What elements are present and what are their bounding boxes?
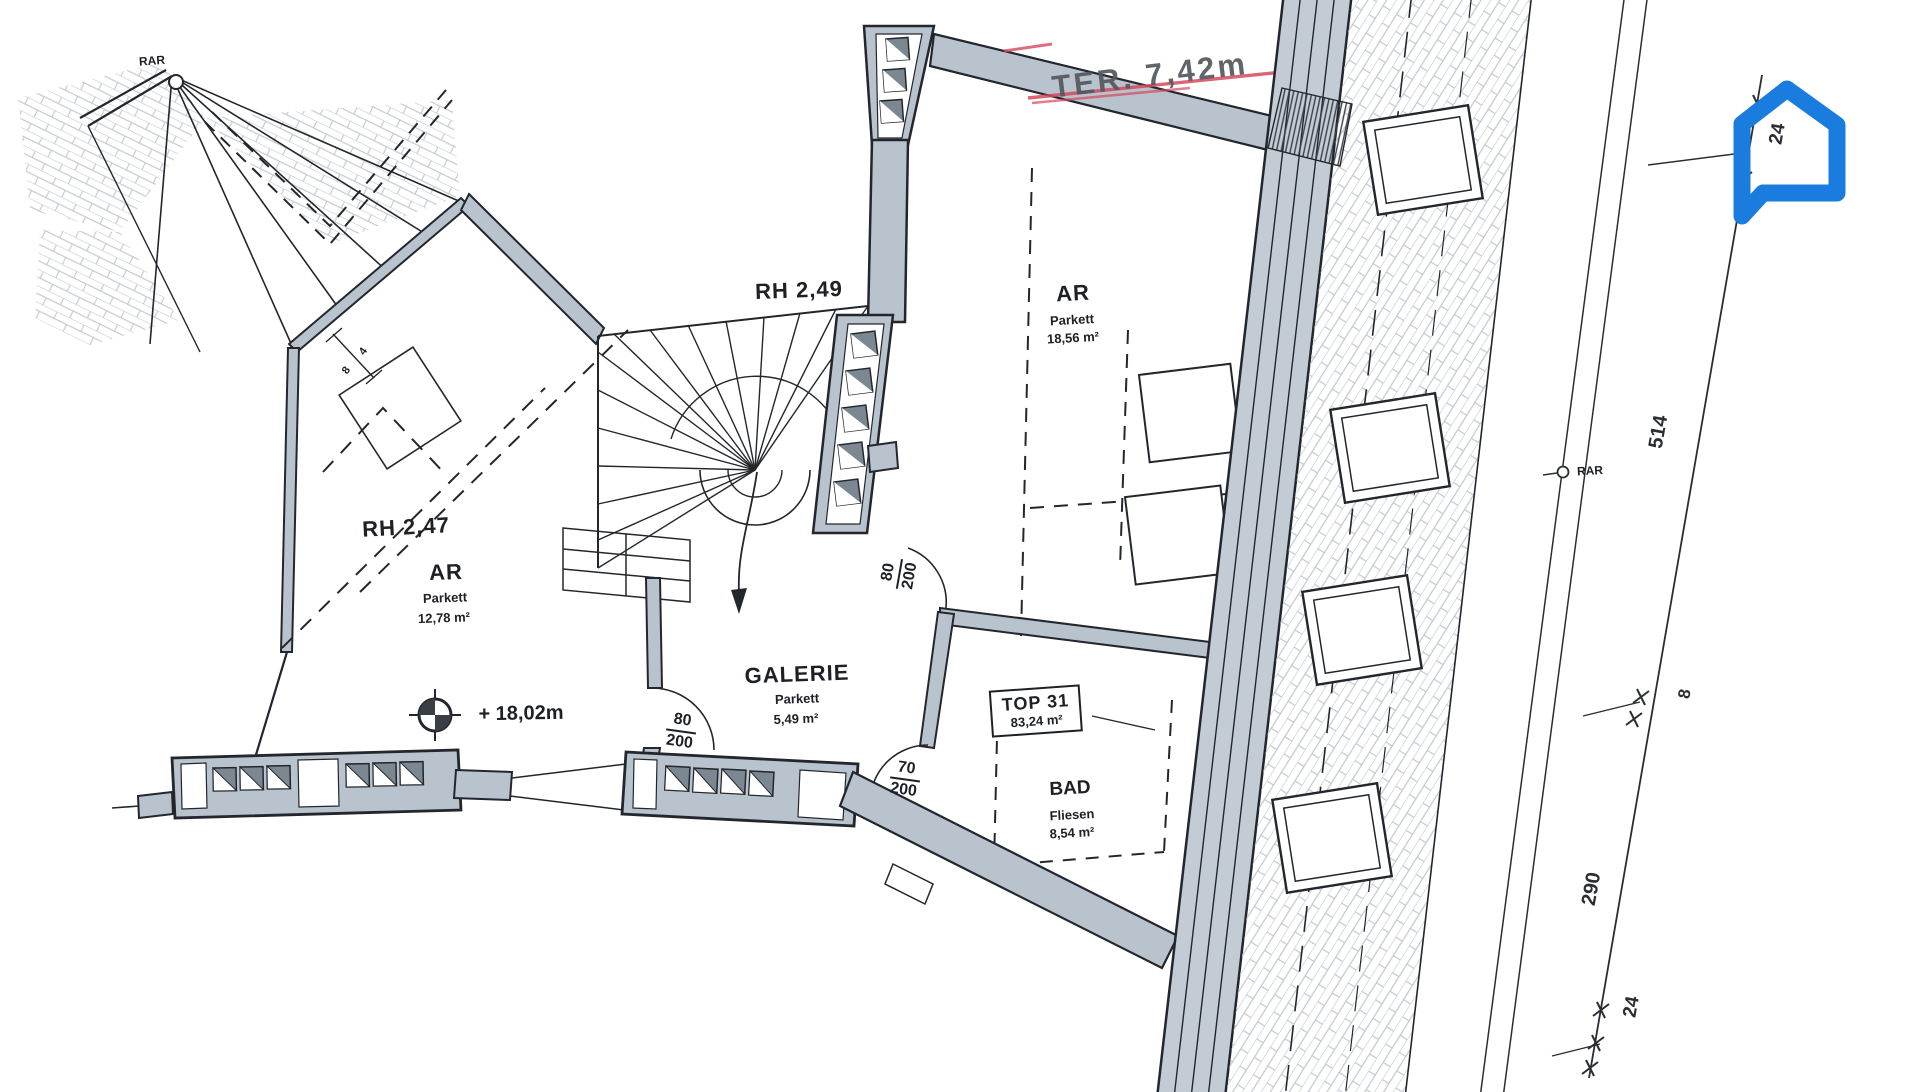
left-room-walls [255,194,604,758]
room-ar-right-area: 18,56 m² [1047,330,1100,346]
bottom-center-window [622,752,858,826]
right-room [1021,168,1241,636]
red-tick [1004,44,1052,51]
closet-2 [1125,485,1231,584]
door-bad-height: 200 [889,778,918,800]
level-marker [409,689,461,741]
unit-box: TOP 31 83,24 m² [989,684,1083,737]
room-ar-left-area: 12,78 m² [418,610,470,625]
rar-left-marker [169,75,183,89]
rar-left-label: RAR [139,54,166,68]
room-ar-right-name: AR [1056,281,1091,306]
house-chat-logo [1742,89,1837,216]
chimney-square [339,347,461,469]
room-ar-right-floor: Parkett [1050,312,1095,328]
bottom-left-window [112,750,461,818]
diagonal-bottom-wall [840,772,1178,968]
room-bad-name: BAD [1049,778,1091,800]
rh-left-label: RH 2,47 [362,513,451,541]
dim-24-top: 24 [1766,122,1789,146]
room-bad-area: 8,54 m² [1049,825,1094,841]
top31-leader [1092,716,1155,730]
unit-area: 83,24 m² [1003,711,1071,731]
roof-fan [18,62,461,352]
dimension-chain [1552,75,1765,1078]
room-galerie-area: 5,49 m² [773,711,818,726]
door-galerie-height: 200 [665,730,694,752]
closet-1 [1139,364,1241,463]
bottom-wall-link [454,764,626,810]
room-bad-floor: Fliesen [1049,807,1094,823]
door-galerie-size: 80 200 [664,710,699,753]
top31-wall [940,608,1210,658]
floorplan-page: { "document": {"type": "floor-plan-scan"… [0,0,1920,1092]
dim-24-bottom: 24 [1620,995,1643,1019]
room-ar-left-floor: Parkett [423,590,468,605]
rh-right-label: RH 2,49 [755,277,843,303]
room-galerie-name: GALERIE [744,661,850,688]
room-galerie-floor: Parkett [775,691,820,706]
rar-right-marker [1543,467,1569,478]
level-label: + 18,02m [478,703,563,725]
rar-right-label: RAR [1577,464,1604,478]
door-bad-size: 70 200 [888,758,923,801]
plan-drawing [0,0,1920,1092]
room-ar-left-name: AR [429,560,464,584]
